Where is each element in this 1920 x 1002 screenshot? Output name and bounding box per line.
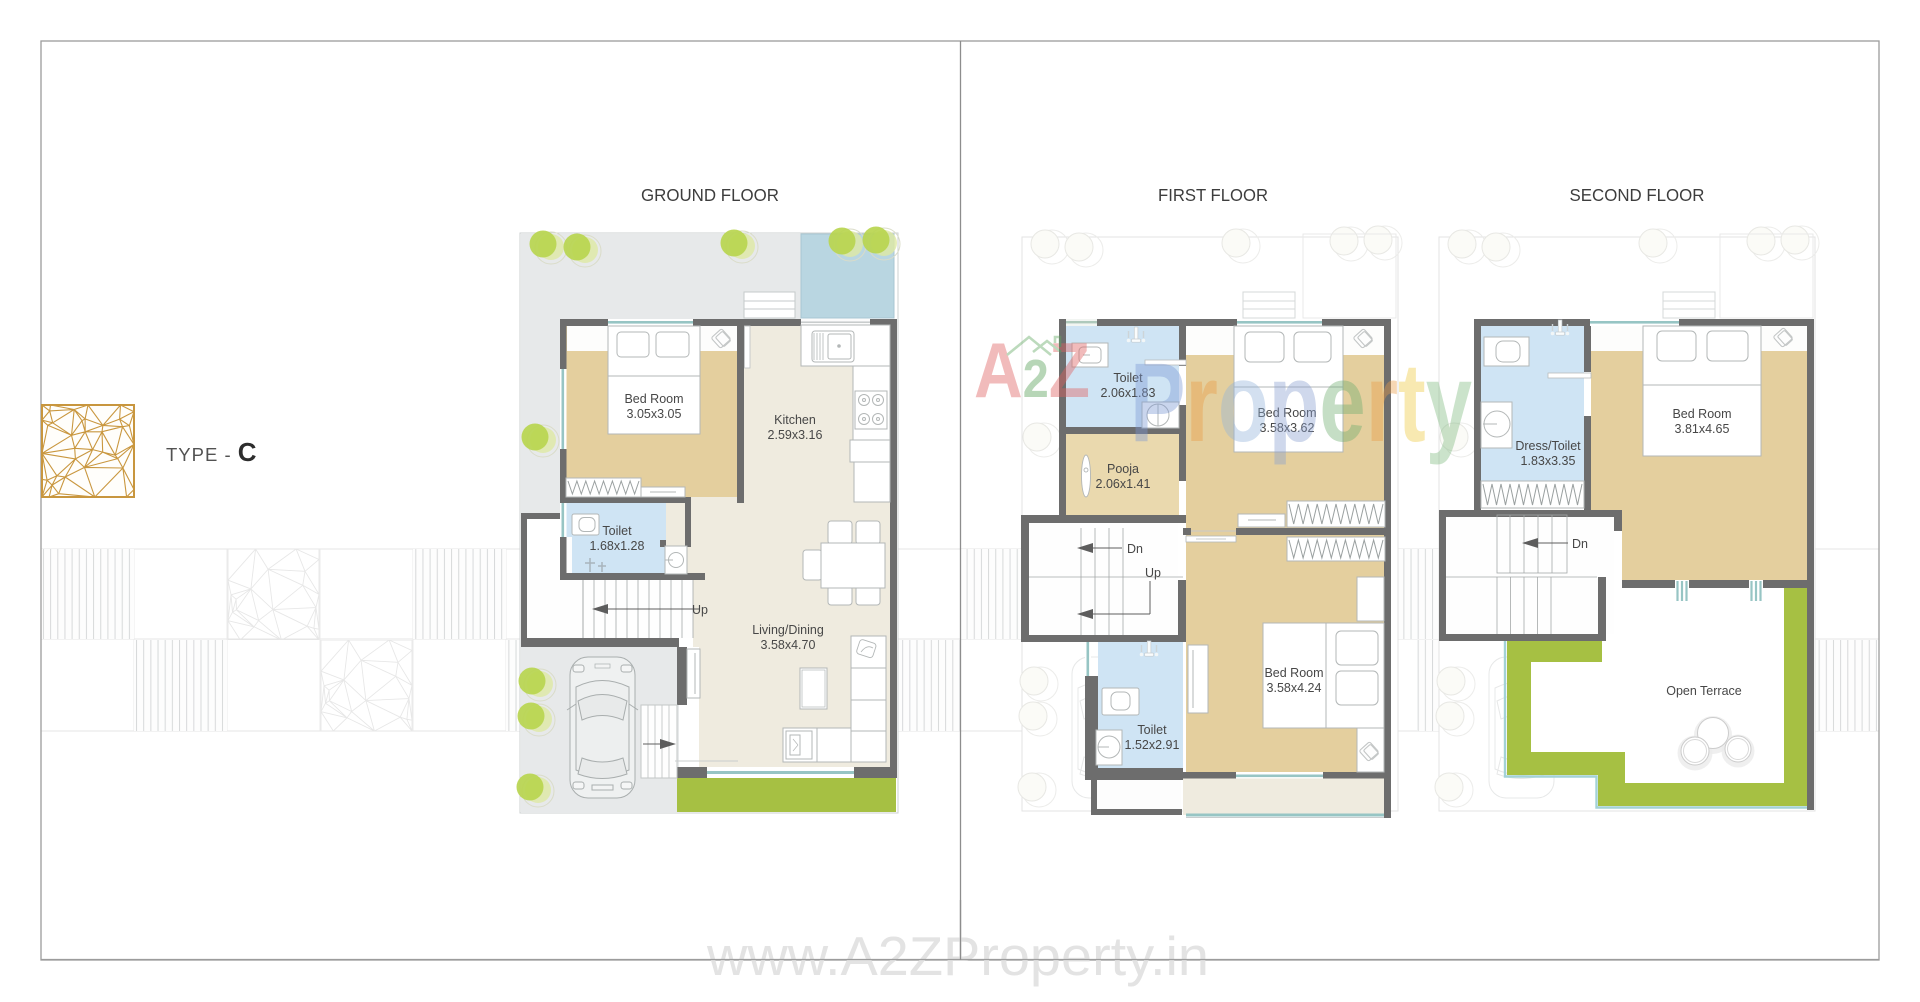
svg-text:GROUND FLOOR: GROUND FLOOR bbox=[641, 185, 779, 205]
svg-text:Toilet: Toilet bbox=[1137, 723, 1167, 737]
svg-text:1.68x1.28: 1.68x1.28 bbox=[590, 539, 645, 553]
svg-text:SECOND FLOOR: SECOND FLOOR bbox=[1570, 185, 1705, 205]
svg-text:Up: Up bbox=[1145, 566, 1161, 580]
svg-text:TYPE - C: TYPE - C bbox=[166, 437, 257, 467]
svg-text:Bed Room: Bed Room bbox=[1264, 666, 1323, 680]
svg-text:1.52x2.91: 1.52x2.91 bbox=[1125, 738, 1180, 752]
svg-text:1.83x3.35: 1.83x3.35 bbox=[1521, 454, 1576, 468]
svg-text:FIRST FLOOR: FIRST FLOOR bbox=[1158, 185, 1268, 205]
svg-text:www.A2ZProperty.in: www.A2ZProperty.in bbox=[706, 925, 1209, 987]
svg-text:Property: Property bbox=[1130, 340, 1472, 465]
svg-text:Kitchen: Kitchen bbox=[774, 413, 816, 427]
svg-text:Bed Room: Bed Room bbox=[624, 392, 683, 406]
svg-text:Bed Room: Bed Room bbox=[1672, 407, 1731, 421]
svg-text:3.05x3.05: 3.05x3.05 bbox=[627, 407, 682, 421]
svg-text:Living/Dining: Living/Dining bbox=[752, 623, 824, 637]
svg-text:2.06x1.41: 2.06x1.41 bbox=[1096, 477, 1151, 491]
svg-text:Toilet: Toilet bbox=[602, 524, 632, 538]
svg-text:Dn: Dn bbox=[1127, 542, 1143, 556]
svg-text:2.59x3.16: 2.59x3.16 bbox=[768, 428, 823, 442]
svg-text:3.81x4.65: 3.81x4.65 bbox=[1675, 422, 1730, 436]
svg-text:Dress/Toilet: Dress/Toilet bbox=[1515, 439, 1581, 453]
svg-text:3.58x4.24: 3.58x4.24 bbox=[1267, 681, 1322, 695]
svg-text:Dn: Dn bbox=[1572, 537, 1588, 551]
svg-text:3.58x4.70: 3.58x4.70 bbox=[761, 638, 816, 652]
svg-text:Open Terrace: Open Terrace bbox=[1666, 684, 1742, 698]
svg-text:Up: Up bbox=[692, 603, 708, 617]
